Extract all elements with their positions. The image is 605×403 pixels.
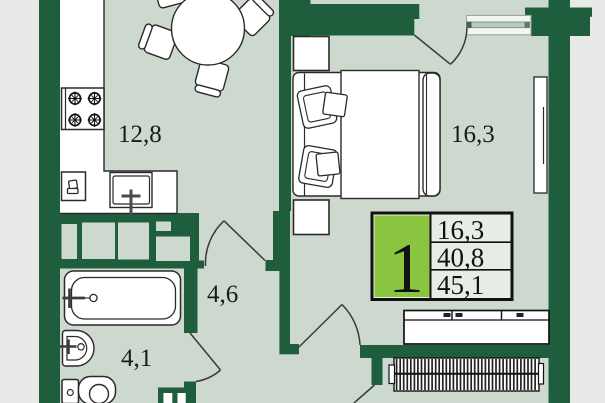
svg-text:16,3: 16,3 [451, 121, 495, 148]
svg-text:16,3: 16,3 [437, 215, 484, 245]
svg-text:4,1: 4,1 [121, 345, 152, 372]
svg-text:45,1: 45,1 [437, 270, 484, 300]
svg-text:4,6: 4,6 [207, 281, 238, 308]
svg-text:12,8: 12,8 [118, 121, 162, 148]
svg-text:40,8: 40,8 [437, 243, 484, 273]
svg-text:1: 1 [388, 230, 424, 308]
